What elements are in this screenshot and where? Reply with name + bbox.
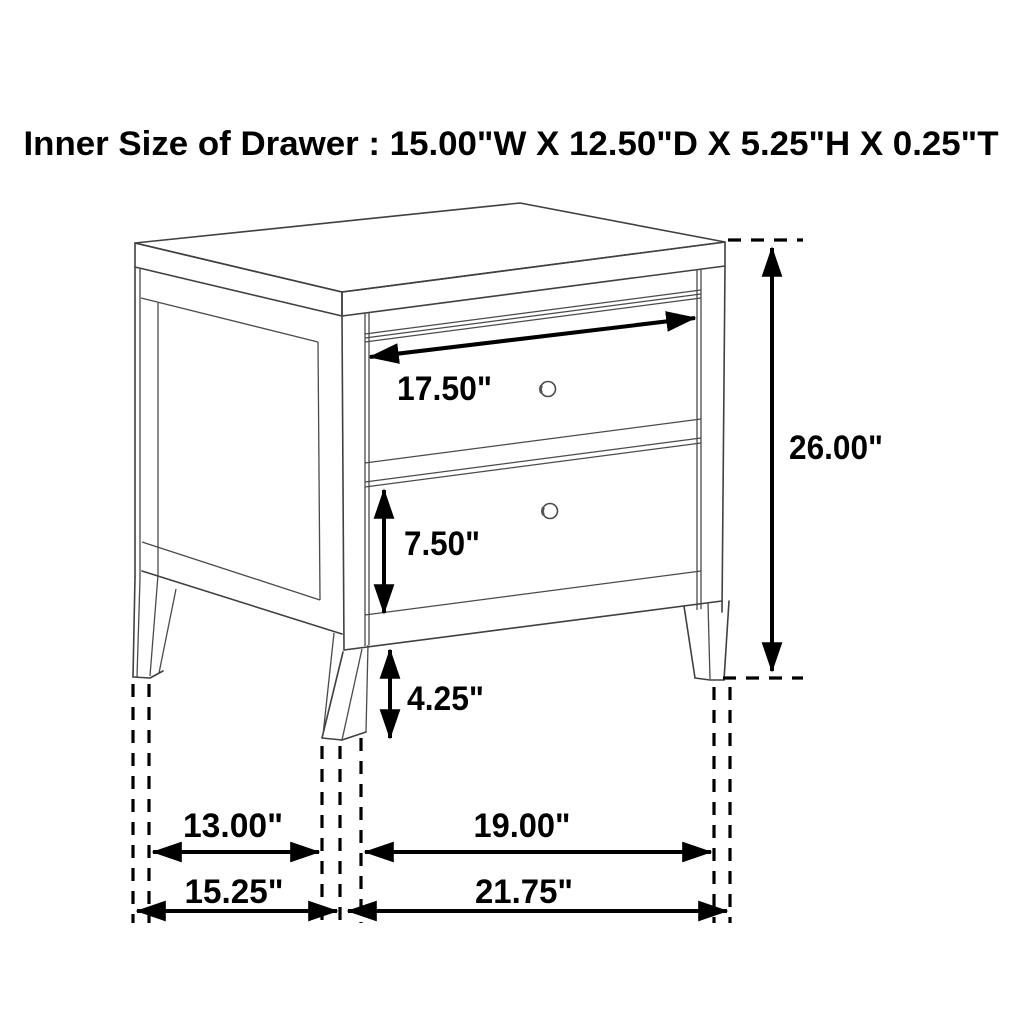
drawer2-knob-shade [543, 508, 544, 515]
dimension-label-drawer-width: 17.50" [397, 370, 492, 408]
dimension-label-overall-height: 26.00" [789, 429, 883, 467]
dimension-label-leg-height: 4.25" [407, 680, 484, 718]
drawer1-knob-shade [541, 386, 542, 393]
dimension-diagram-page: Inner Size of Drawer : 15.00"W X 12.50"D… [0, 0, 1024, 1024]
dimension-label-side-leg-spacing: 13.00" [183, 807, 283, 845]
dimension-label-overall-width: 21.75" [475, 873, 573, 911]
diagram-title: Inner Size of Drawer : 15.00"W X 12.50"D… [24, 125, 999, 163]
dimension-label-lower-drawer-height: 7.50" [404, 525, 480, 563]
drawer1-knob [541, 382, 556, 397]
nightstand-dimension-diagram: Inner Size of Drawer : 15.00"W X 12.50"D… [0, 0, 1024, 1024]
dimension-label-front-leg-spacing: 19.00" [474, 807, 571, 845]
dimension-label-overall-depth: 15.25" [185, 873, 284, 911]
drawer2-knob [543, 504, 558, 519]
